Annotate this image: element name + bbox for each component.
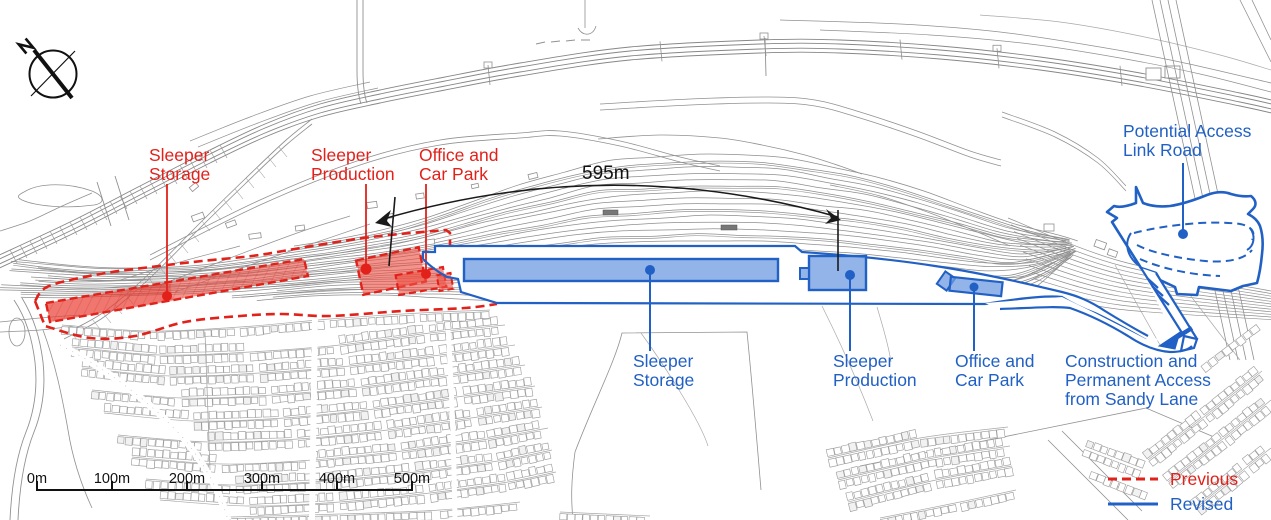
svg-text:0m: 0m (27, 471, 47, 487)
svg-text:500m: 500m (394, 471, 430, 487)
svg-text:Office andCar Park: Office andCar Park (419, 145, 498, 184)
svg-text:300m: 300m (244, 471, 280, 487)
svg-text:SleeperStorage: SleeperStorage (149, 145, 210, 184)
svg-text:SleeperStorage: SleeperStorage (633, 351, 694, 390)
svg-text:400m: 400m (319, 471, 355, 487)
svg-text:Previous: Previous (1170, 469, 1238, 489)
svg-text:100m: 100m (94, 471, 130, 487)
svg-text:595m: 595m (582, 163, 630, 184)
svg-text:200m: 200m (169, 471, 205, 487)
svg-text:Revised: Revised (1170, 494, 1233, 514)
svg-text:Construction andPermanent Acce: Construction andPermanent Accessfrom San… (1065, 351, 1211, 409)
svg-text:Office andCar Park: Office andCar Park (955, 351, 1034, 390)
